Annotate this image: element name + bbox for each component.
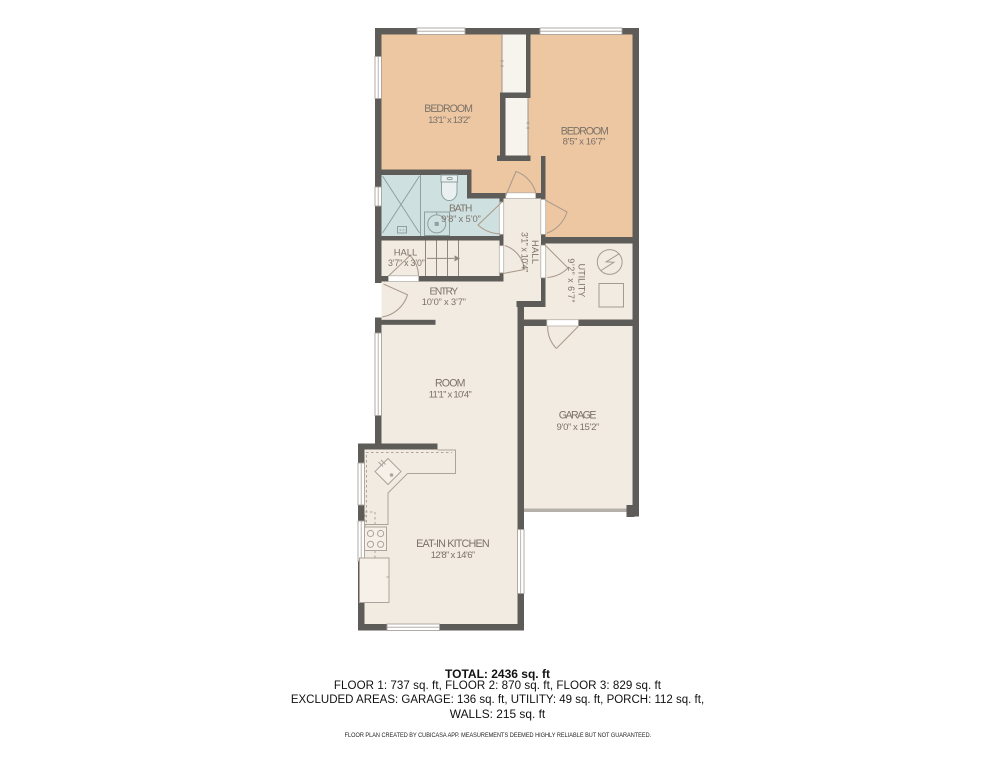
svg-text:9’0” x 15’2”: 9’0” x 15’2” <box>557 422 600 433</box>
svg-text:11’1” x 10’4”: 11’1” x 10’4” <box>429 390 472 401</box>
svg-text:3’7” x 3’0”: 3’7” x 3’0” <box>388 258 425 268</box>
svg-text:GARAGE: GARAGE <box>559 409 597 421</box>
svg-text:13’1” x 13’2”: 13’1” x 13’2” <box>428 115 471 126</box>
svg-text:UTILITY: UTILITY <box>576 264 586 298</box>
svg-text:HALL: HALL <box>530 240 540 264</box>
svg-text:12’8” x 14’6”: 12’8” x 14’6” <box>431 550 475 561</box>
svg-text:ROOM: ROOM <box>435 377 466 389</box>
svg-text:HALL: HALL <box>394 246 417 257</box>
svg-text:9’2” x 6’7”: 9’2” x 6’7” <box>566 258 576 302</box>
svg-text:EAT-IN KITCHEN: EAT-IN KITCHEN <box>416 538 490 550</box>
svg-text:8’5” x 16’7”: 8’5” x 16’7” <box>563 136 606 147</box>
svg-text:BEDROOM: BEDROOM <box>424 103 473 115</box>
svg-text:3’1” x 10’4”: 3’1” x 10’4” <box>520 232 530 272</box>
svg-text:9’8” x 5’0”: 9’8” x 5’0” <box>441 213 481 224</box>
svg-text:10’0” x 3’7”: 10’0” x 3’7” <box>422 296 466 307</box>
